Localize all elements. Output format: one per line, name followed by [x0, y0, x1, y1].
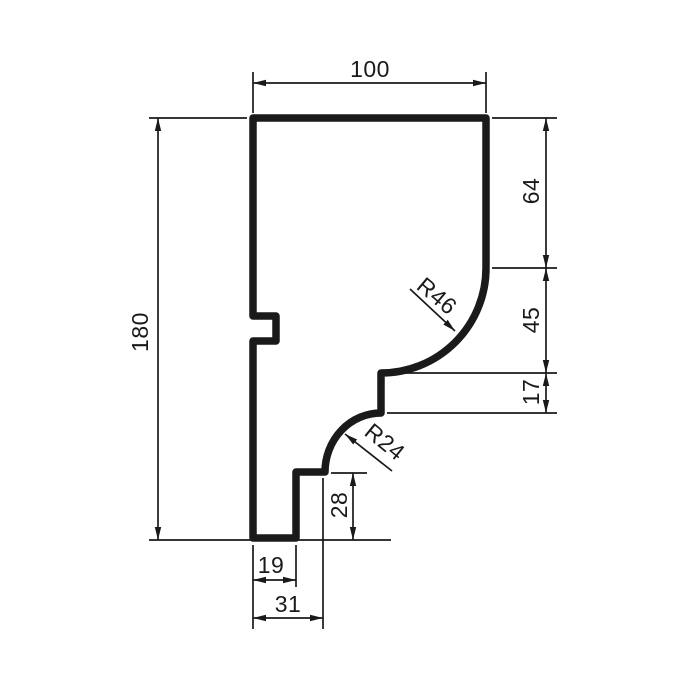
- technical-drawing: 100 180 64 45 17 28 19 31 R46 R24: [0, 0, 686, 686]
- dim-label-28: 28: [326, 492, 352, 519]
- dim-label-45: 45: [518, 307, 544, 334]
- radius-label-r24: R24: [360, 418, 410, 466]
- extension-lines: [149, 72, 557, 629]
- drawing-canvas: 100 180 64 45 17 28 19 31 R46 R24: [0, 0, 686, 686]
- dim-label-19: 19: [258, 552, 285, 578]
- dimension-labels: 100 180 64 45 17 28 19 31 R46 R24: [127, 56, 544, 617]
- dim-label-100: 100: [350, 56, 390, 82]
- dim-label-64: 64: [518, 178, 544, 205]
- dim-label-17: 17: [518, 379, 544, 406]
- dim-label-180: 180: [127, 312, 153, 352]
- radius-label-r46: R46: [412, 272, 462, 320]
- dim-label-31: 31: [275, 591, 302, 617]
